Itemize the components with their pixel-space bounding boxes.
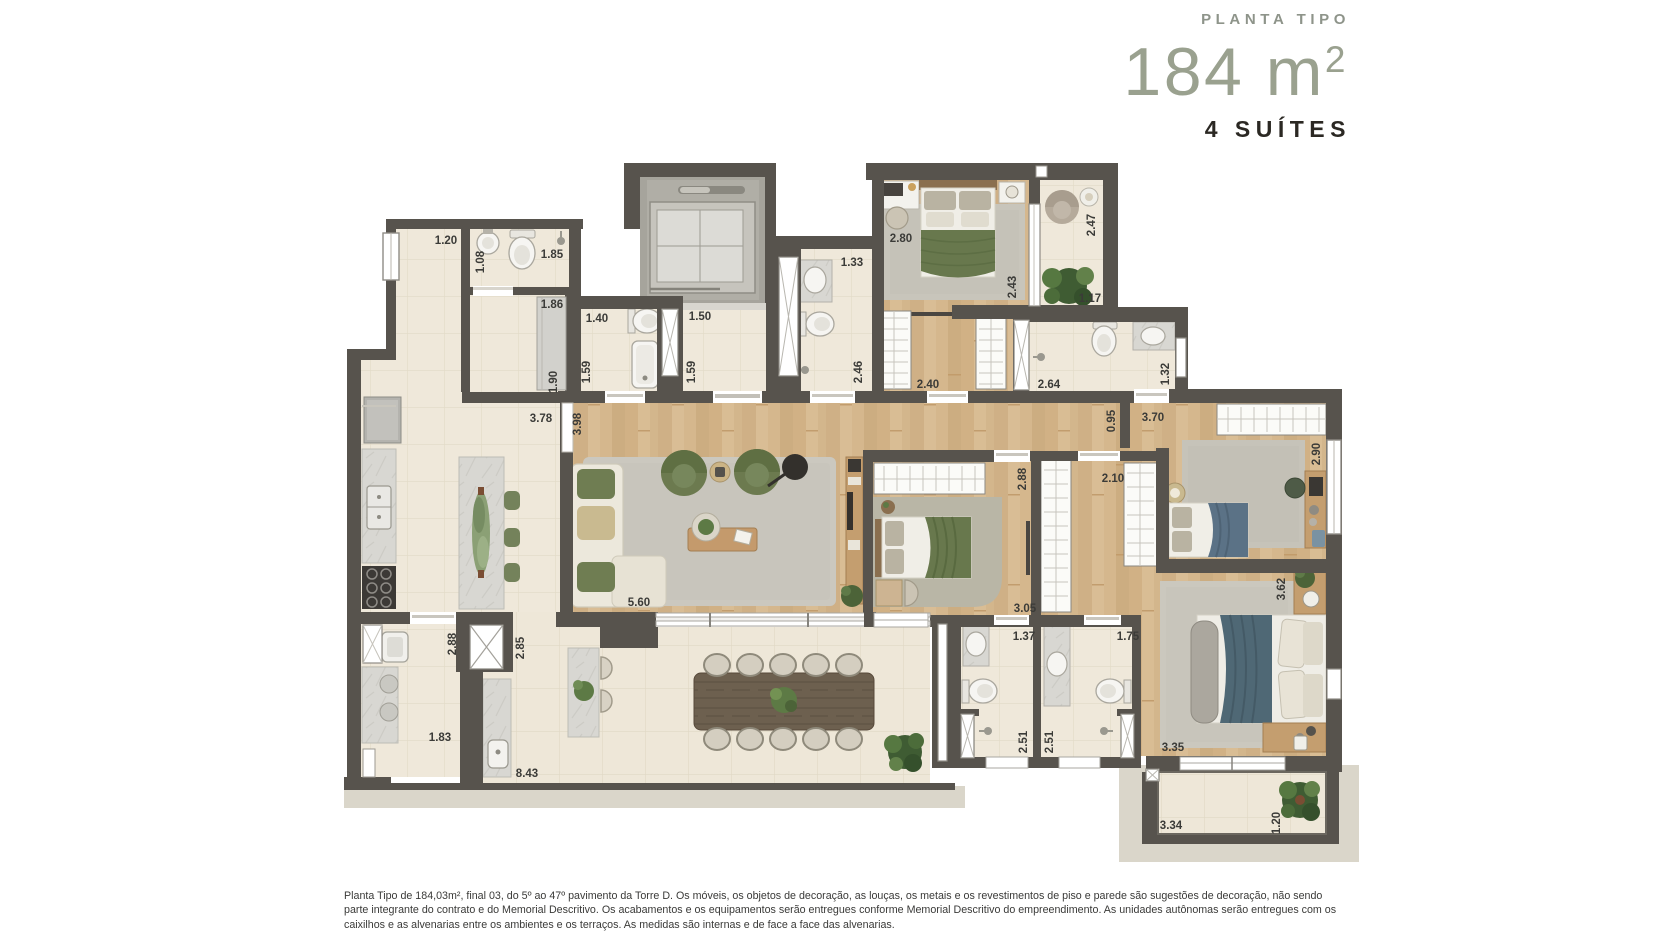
svg-text:1.40: 1.40 (586, 313, 608, 325)
svg-text:2.51: 2.51 (1044, 730, 1056, 753)
svg-text:1.75: 1.75 (1117, 631, 1140, 643)
svg-text:3.05: 3.05 (1014, 603, 1037, 615)
svg-text:3.62: 3.62 (1276, 578, 1288, 600)
svg-text:1.85: 1.85 (541, 249, 564, 261)
svg-text:2.47: 2.47 (1086, 214, 1098, 236)
svg-text:2.85: 2.85 (515, 636, 527, 659)
svg-text:2.10: 2.10 (1102, 473, 1124, 485)
svg-text:1.08: 1.08 (475, 250, 487, 273)
svg-text:2.46: 2.46 (853, 361, 865, 383)
svg-text:1.59: 1.59 (581, 361, 593, 383)
svg-text:2.90: 2.90 (1311, 443, 1323, 465)
svg-text:3.98: 3.98 (572, 412, 584, 435)
svg-text:2.40: 2.40 (917, 379, 939, 391)
svg-text:2.88: 2.88 (447, 632, 459, 655)
svg-text:1.33: 1.33 (841, 257, 863, 269)
svg-text:2.88: 2.88 (1017, 467, 1029, 490)
svg-text:1.20: 1.20 (435, 235, 457, 247)
svg-text:2.64: 2.64 (1038, 379, 1061, 391)
svg-text:3.34: 3.34 (1160, 820, 1183, 832)
svg-text:1.32: 1.32 (1160, 363, 1172, 385)
svg-text:5.60: 5.60 (628, 597, 650, 609)
svg-text:2.80: 2.80 (890, 233, 912, 245)
svg-text:1.37: 1.37 (1013, 631, 1035, 643)
svg-text:3.70: 3.70 (1142, 412, 1164, 424)
svg-text:1.50: 1.50 (689, 311, 711, 323)
svg-text:3.35: 3.35 (1162, 742, 1185, 754)
svg-text:1.90: 1.90 (548, 371, 560, 393)
svg-text:2.51: 2.51 (1018, 730, 1030, 753)
svg-text:1.59: 1.59 (686, 361, 698, 383)
svg-text:8.43: 8.43 (516, 768, 538, 780)
svg-text:1.83: 1.83 (429, 732, 451, 744)
svg-text:0.95: 0.95 (1106, 409, 1118, 432)
svg-text:3.78: 3.78 (530, 413, 553, 425)
svg-text:1.20: 1.20 (1271, 812, 1283, 834)
svg-text:1.86: 1.86 (541, 299, 563, 311)
svg-text:2.43: 2.43 (1007, 276, 1019, 298)
svg-text:1.17: 1.17 (1079, 293, 1101, 305)
